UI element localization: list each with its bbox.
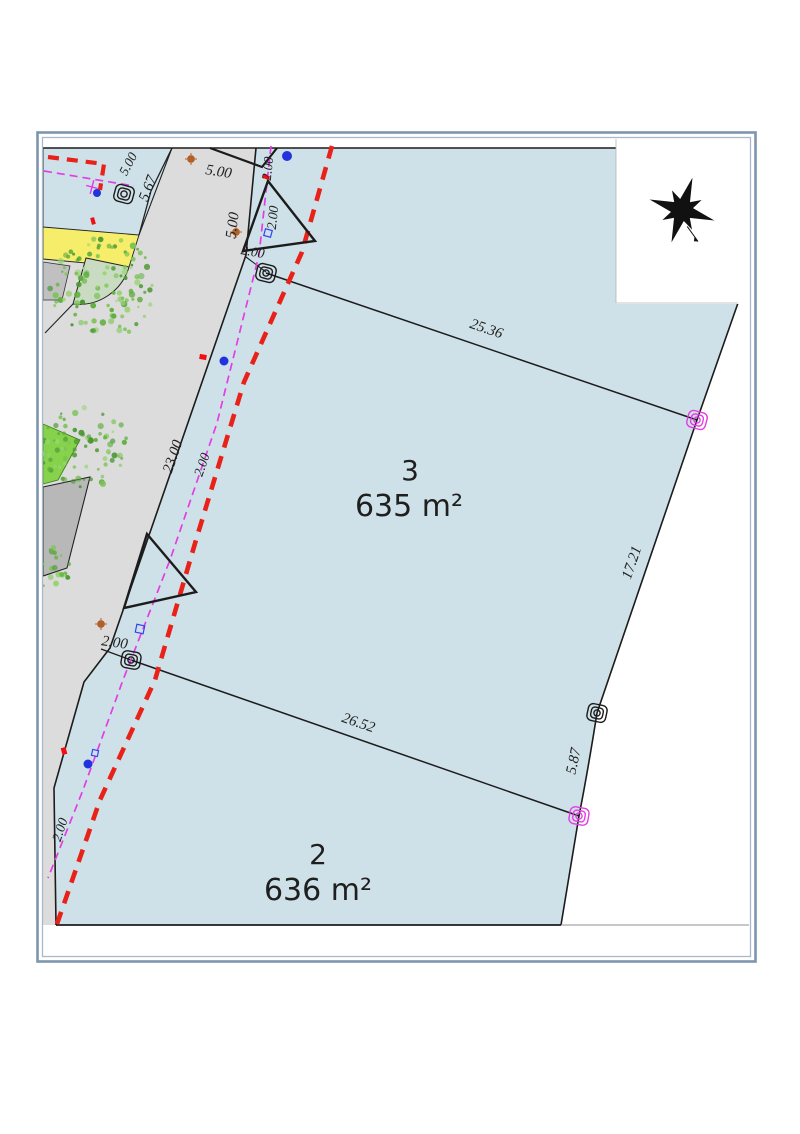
dim-top-offset: 2.00 xyxy=(259,156,276,181)
parcel2-number: 2 xyxy=(309,838,327,871)
parcel2-area: 636 m² xyxy=(264,873,372,908)
plan-svg: 5.00 5.67 5.00 2.00 2.00 23.00 2.00 25.3… xyxy=(0,0,800,1134)
valve-dot xyxy=(84,760,93,769)
survey-plan-page: 5.00 5.67 5.00 2.00 2.00 23.00 2.00 25.3… xyxy=(0,0,800,1134)
valve-dot xyxy=(282,151,292,161)
parcel3-area: 635 m² xyxy=(355,489,463,524)
offset-label-top: 2.00 xyxy=(264,205,281,230)
valve-dot xyxy=(220,357,229,366)
parcel3-number: 3 xyxy=(401,454,419,487)
valve-dot xyxy=(93,189,101,197)
